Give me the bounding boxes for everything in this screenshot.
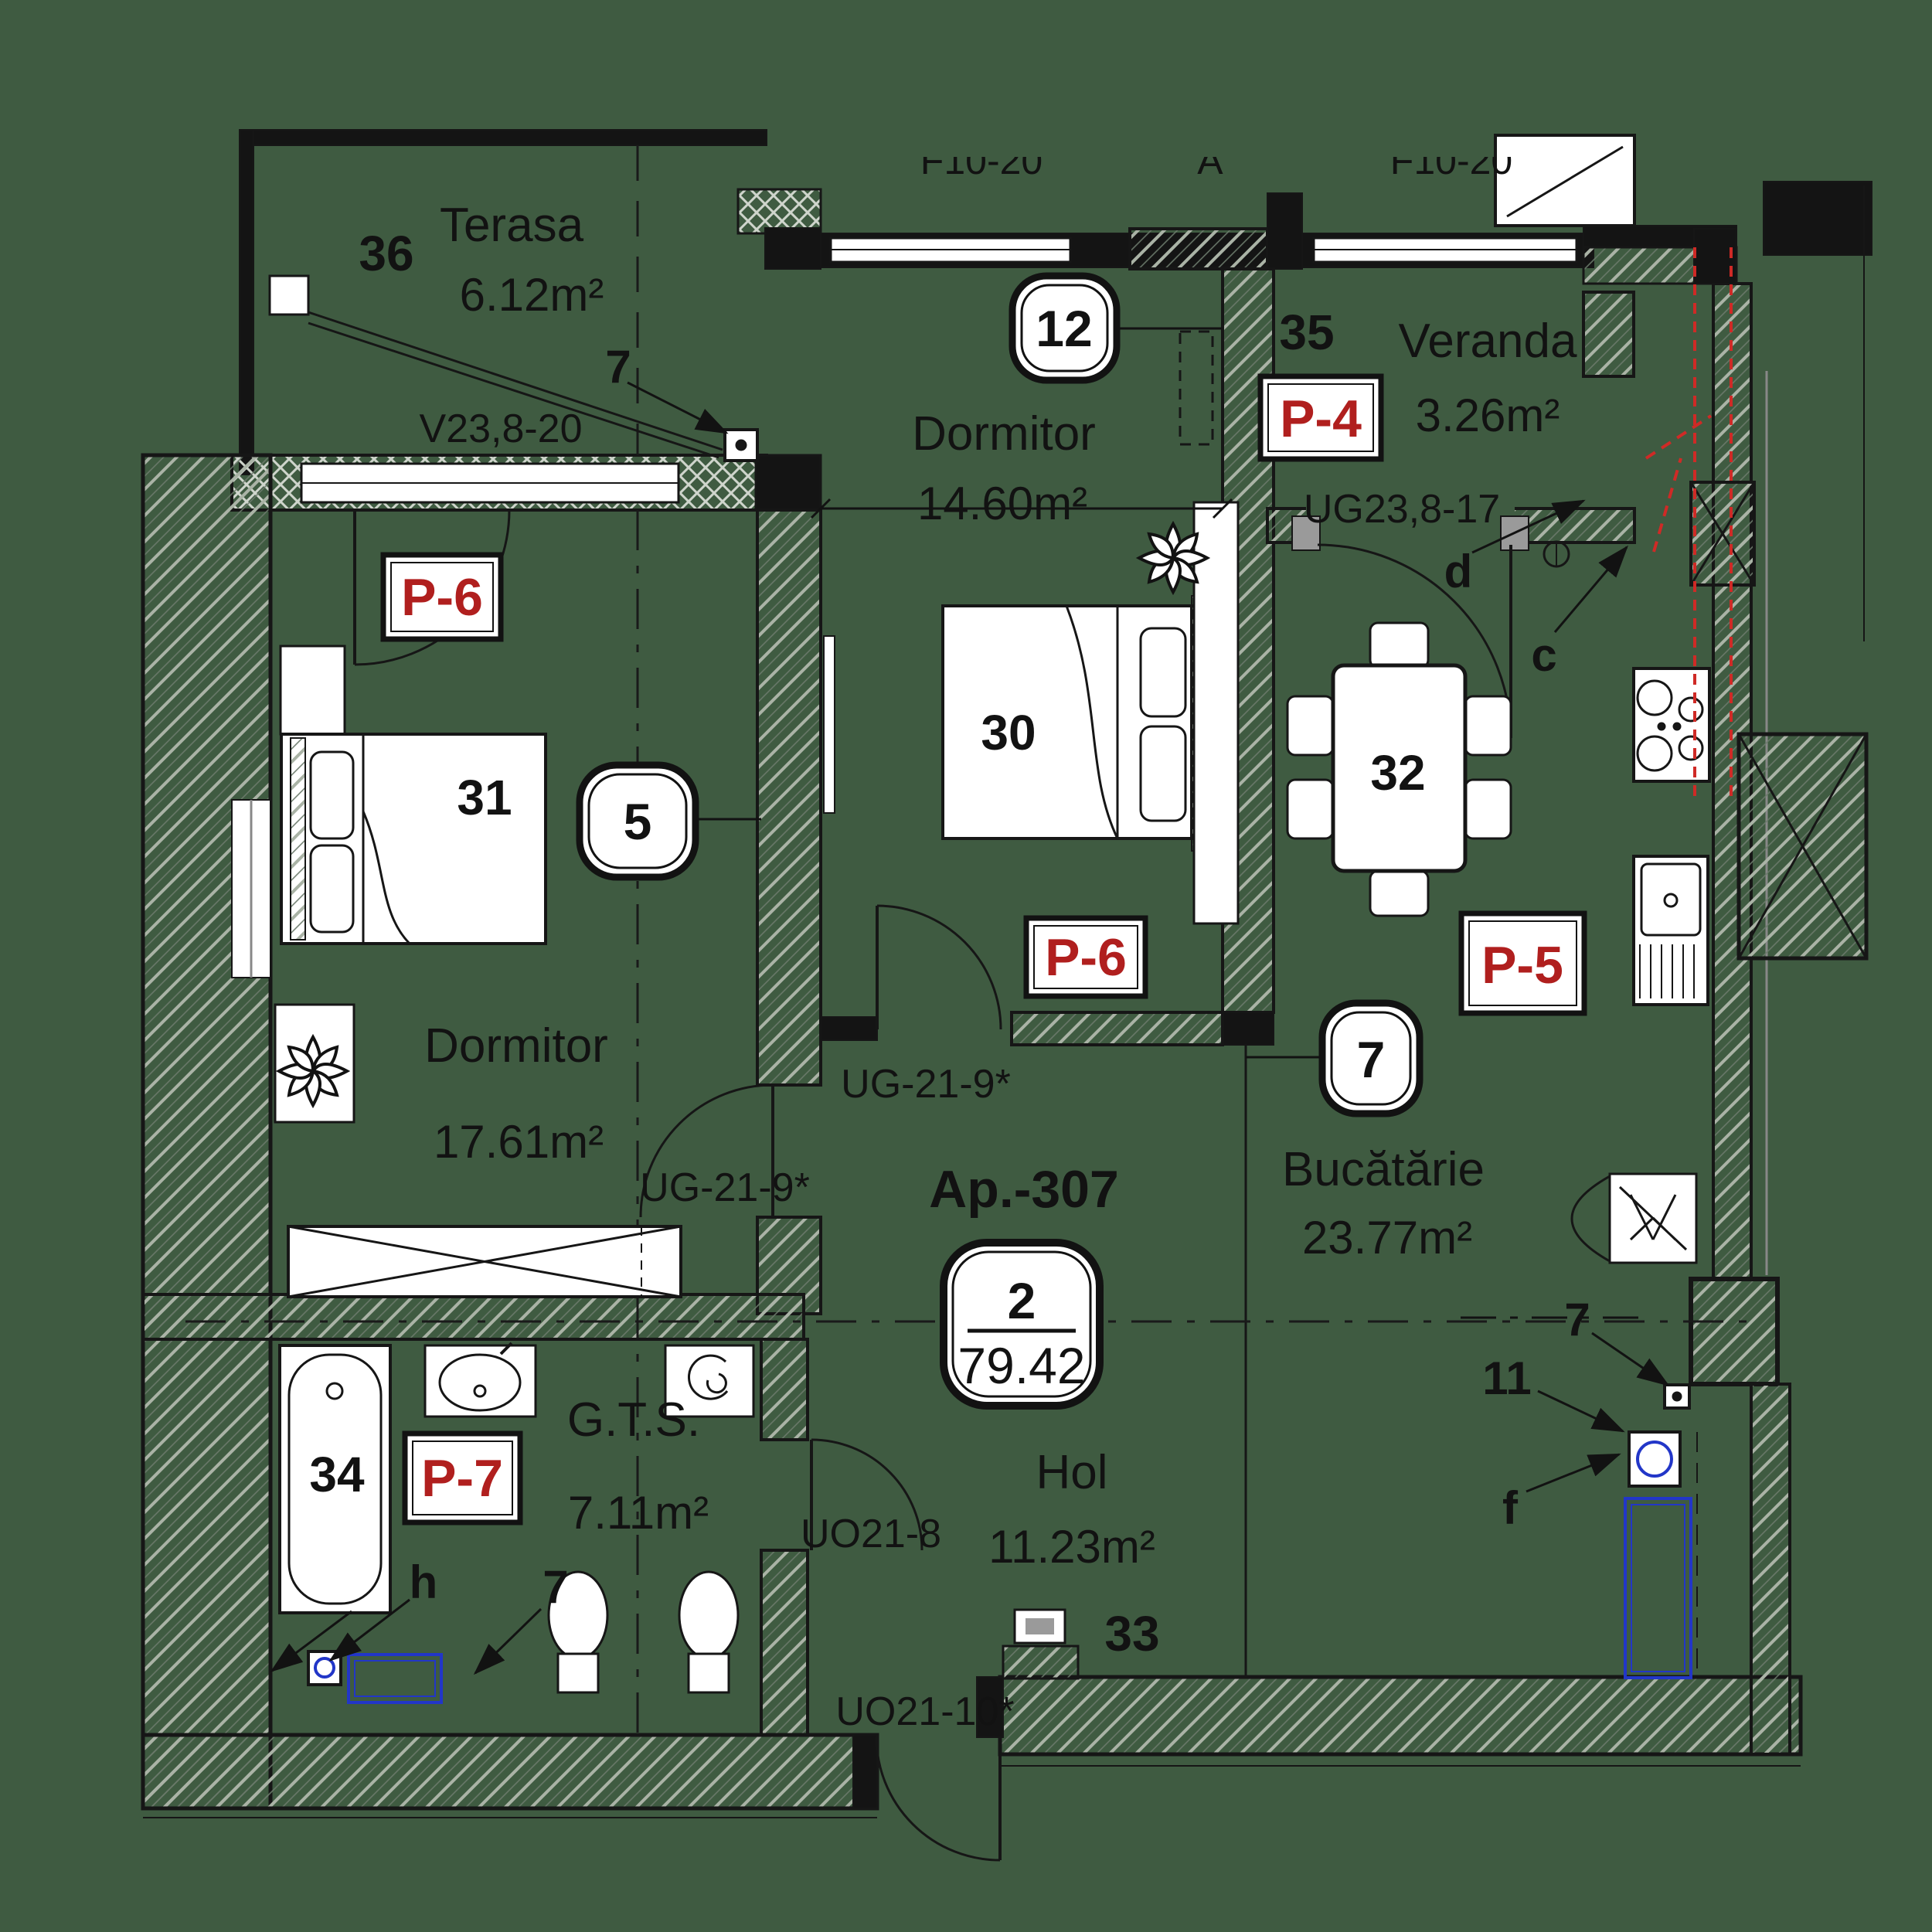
gts-sink	[425, 1343, 536, 1417]
clipped-label-mid: "A"	[1184, 139, 1237, 182]
tv-panel	[824, 636, 835, 813]
callout-7-gts: 7	[543, 1561, 568, 1613]
wall-crenel	[738, 189, 821, 233]
wall-gts-right-lower	[761, 1550, 808, 1735]
room-number-hol: 33	[1104, 1606, 1159, 1662]
finish-label-p6-d30: P-6	[1045, 928, 1127, 987]
room-number-terasa: 36	[359, 226, 413, 281]
duct-cabinet	[1629, 1385, 1689, 1486]
room-number-dormitor30: 30	[981, 705, 1036, 760]
toilet	[679, 1572, 738, 1692]
room-number-bucatarie: 32	[1370, 745, 1425, 801]
wall-pier-hatched	[1130, 229, 1267, 269]
apartment-rooms-count: 2	[1008, 1272, 1036, 1329]
wall-pier	[1267, 193, 1302, 269]
wall-right-jog	[1691, 1279, 1777, 1384]
room-area-veranda: 3.26m²	[1416, 389, 1560, 441]
room-name-bucatarie: Bucătărie	[1282, 1143, 1485, 1196]
wall-pier	[1223, 1012, 1274, 1045]
plant-table-31	[275, 1005, 354, 1122]
wall-gts-top	[143, 1294, 804, 1339]
wall-stub	[1003, 1646, 1078, 1679]
code-terasa-window: V23,8-20	[419, 406, 582, 451]
wall-right-lower	[1751, 1384, 1790, 1754]
finish-label-p6-d31: P-6	[401, 568, 483, 627]
wall-entry-jamb	[853, 1735, 877, 1808]
wall-bottom-left	[143, 1735, 877, 1808]
room-name-dormitor31: Dormitor	[424, 1019, 608, 1073]
wall-d30-bottom-left	[821, 1017, 877, 1040]
terasa-post	[270, 276, 308, 315]
cooktop	[1634, 668, 1709, 781]
room-area-gts: 7.11m²	[568, 1487, 709, 1539]
wardrobe-31	[288, 1226, 681, 1297]
terasa-parapet-top	[240, 130, 767, 145]
terasa-parapet-left	[240, 130, 253, 474]
code-veranda-door: UG23,8-17	[1304, 487, 1500, 532]
room-number-veranda: 35	[1279, 304, 1334, 360]
code-entrance-door: UO21-10*	[835, 1689, 1014, 1734]
room-area-hol: 11.23m²	[988, 1521, 1155, 1573]
floor-plan-page: 36 Terasa 6.12m² 7 V23,8-20 F10-20 "A" F…	[0, 0, 1932, 1932]
finish-label-p7: P-7	[421, 1449, 503, 1508]
letter-h: h	[410, 1556, 438, 1608]
callout-11: 11	[1482, 1352, 1531, 1404]
room-area-dormitor31: 17.61m²	[434, 1116, 604, 1168]
door-swing	[876, 1736, 1000, 1860]
room-name-terasa: Terasa	[440, 199, 584, 252]
letter-d: d	[1444, 546, 1473, 597]
door-swing	[877, 906, 1001, 1029]
wall-pier	[756, 455, 821, 510]
apartment-id: Ap.-307	[929, 1160, 1119, 1219]
code-d30-door: UG-21-9*	[841, 1062, 1011, 1107]
radiator-dashed	[1180, 332, 1213, 444]
fridge	[1572, 1174, 1696, 1263]
room-area-terasa: 6.12m²	[460, 269, 604, 321]
shower-tray	[349, 1655, 441, 1702]
wall-between-bedrooms-upper	[757, 510, 821, 1085]
finish-label-p5: P-5	[1481, 936, 1563, 995]
letter-c: c	[1531, 629, 1556, 681]
clipped-label-left: F10-20	[920, 139, 1043, 182]
callout-7-kitchen-right: 7	[1564, 1294, 1590, 1345]
room-name-hol: Hol	[1036, 1446, 1107, 1499]
room-area-dormitor30: 14.60m²	[917, 478, 1087, 529]
callout-12: 12	[1036, 300, 1092, 357]
letter-f: f	[1502, 1482, 1519, 1534]
vertical-duct	[1625, 1498, 1691, 1678]
floor-plan-drawing: 36 Terasa 6.12m² 7 V23,8-20 F10-20 "A" F…	[0, 0, 1932, 1932]
room-name-veranda: Veranda	[1399, 315, 1578, 368]
room-name-gts: G.T.S.	[567, 1393, 700, 1447]
room-number-gts: 34	[309, 1447, 365, 1502]
room-name-dormitor30: Dormitor	[912, 407, 1096, 461]
room-area-bucatarie: 23.77m²	[1302, 1212, 1472, 1264]
code-gts-door: UO21-8	[801, 1512, 941, 1556]
apartment-total-area: 79.42	[957, 1337, 1085, 1394]
plant-icon	[279, 1037, 347, 1105]
code-d31-door: UG-21-9*	[640, 1165, 810, 1210]
callout-7-terasa: 7	[605, 341, 631, 393]
wall-gts-right-upper	[761, 1339, 808, 1440]
wall-bottom-right	[1000, 1677, 1801, 1754]
callout-7-kitchen: 7	[1357, 1031, 1386, 1088]
wall-d30-bottom	[1012, 1012, 1223, 1045]
wall-pier	[765, 228, 821, 269]
room-number-dormitor31: 31	[457, 770, 512, 825]
kitchen-sink	[1634, 856, 1708, 1005]
finish-label-p4: P-4	[1280, 389, 1362, 448]
callout-5: 5	[624, 793, 652, 850]
wall-left-exterior	[143, 455, 270, 1808]
plant-icon	[1139, 524, 1207, 592]
